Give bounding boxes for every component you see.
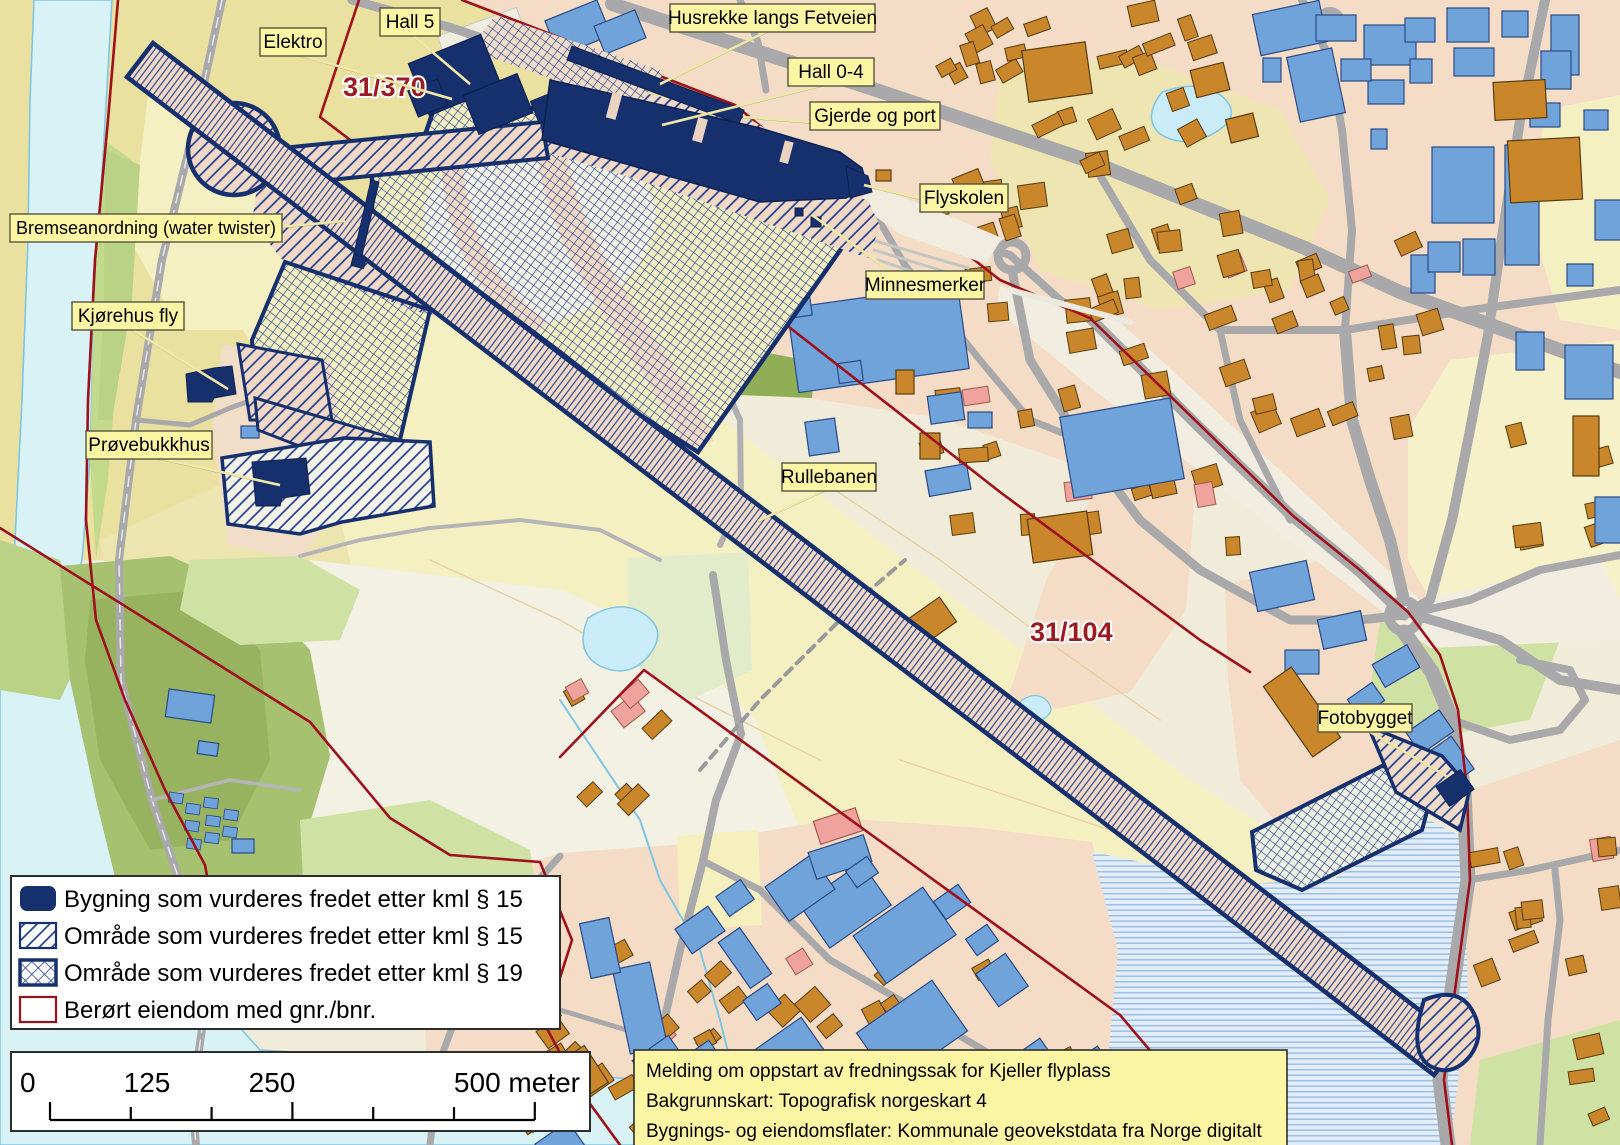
svg-text:Område som vurderes fredet ett: Område som vurderes fredet etter kml § 1… — [64, 923, 523, 950]
svg-text:500 meter: 500 meter — [454, 1067, 580, 1098]
svg-text:Bygnings- og eiendomsflater: K: Bygnings- og eiendomsflater: Kommunale g… — [646, 1121, 1262, 1142]
svg-text:Gjerde og port: Gjerde og port — [814, 106, 936, 127]
svg-text:Prøvebukkhus: Prøvebukkhus — [88, 435, 209, 456]
svg-text:250: 250 — [249, 1067, 296, 1098]
svg-text:Husrekke langs Fetveien: Husrekke langs Fetveien — [668, 8, 877, 29]
svg-text:31/104: 31/104 — [1030, 617, 1113, 647]
svg-text:Kjørehus fly: Kjørehus fly — [78, 306, 179, 327]
svg-text:Område som vurderes fredet ett: Område som vurderes fredet etter kml § 1… — [64, 960, 523, 987]
svg-text:Flyskolen: Flyskolen — [924, 188, 1004, 209]
svg-text:Fotobygget: Fotobygget — [1317, 708, 1413, 729]
svg-text:Bakgrunnskart: Topografisk nor: Bakgrunnskart: Topografisk norgeskart 4 — [646, 1091, 987, 1112]
svg-text:Bremseanordning (water twister: Bremseanordning (water twister) — [16, 218, 276, 238]
svg-text:Hall 5: Hall 5 — [386, 12, 435, 33]
svg-text:125: 125 — [124, 1067, 171, 1098]
svg-text:Minnesmerker: Minnesmerker — [865, 275, 986, 296]
svg-text:Berørt eiendom med gnr./bnr.: Berørt eiendom med gnr./bnr. — [64, 997, 376, 1024]
svg-text:Melding om oppstart av frednin: Melding om oppstart av fredningssak for … — [646, 1061, 1111, 1082]
svg-text:Bygning som vurderes fredet et: Bygning som vurderes fredet etter kml § … — [64, 886, 523, 913]
svg-text:Rullebanen: Rullebanen — [781, 467, 877, 488]
svg-text:Hall 0-4: Hall 0-4 — [798, 62, 864, 83]
svg-text:0: 0 — [20, 1067, 36, 1098]
svg-text:Elektro: Elektro — [263, 32, 322, 53]
